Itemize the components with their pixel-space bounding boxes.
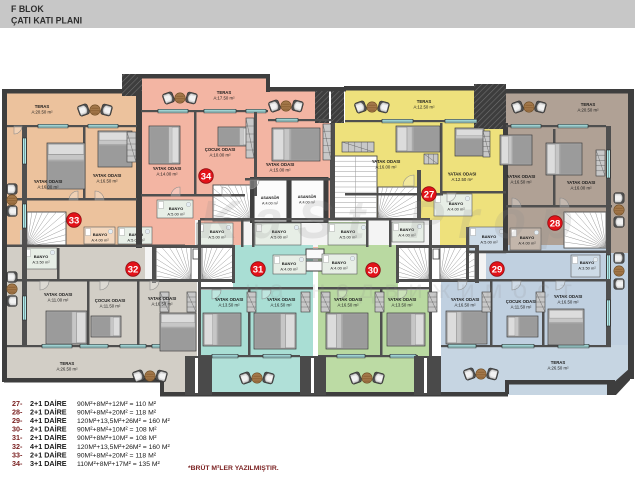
svg-text:TERAS: TERAS xyxy=(35,104,50,109)
svg-text:A:15.00 m²: A:15.00 m² xyxy=(269,167,291,172)
svg-text:A:26.50 m²: A:26.50 m² xyxy=(56,366,78,371)
svg-text:28: 28 xyxy=(550,218,561,229)
svg-text:A:14.00 m²: A:14.00 m² xyxy=(156,171,178,176)
svg-text:YATAK ODASI: YATAK ODASI xyxy=(448,172,477,177)
svg-text:TERAS: TERAS xyxy=(581,102,596,107)
svg-text:32: 32 xyxy=(128,264,139,275)
svg-text:ÇOCUK ODASI: ÇOCUK ODASI xyxy=(205,147,236,152)
svg-text:BANYO: BANYO xyxy=(34,254,48,259)
svg-text:YATAK ODASI: YATAK ODASI xyxy=(507,174,536,179)
svg-text:YATAK ODASI: YATAK ODASI xyxy=(372,159,401,164)
svg-text:ÇOCUK ODASI: ÇOCUK ODASI xyxy=(95,298,126,303)
svg-text:YATAK ODASI: YATAK ODASI xyxy=(148,296,177,301)
svg-text:90M²+8M²+20M² = 118 M²: 90M²+8M²+20M² = 118 M² xyxy=(77,410,157,417)
svg-text:TERAS: TERAS xyxy=(60,361,75,366)
svg-text:A:12.50 m²: A:12.50 m² xyxy=(451,177,473,182)
svg-text:A:16.50 m²: A:16.50 m² xyxy=(96,178,118,183)
svg-text:ÇATI KATI PLANI: ÇATI KATI PLANI xyxy=(11,16,82,26)
svg-text:YATAK ODASI: YATAK ODASI xyxy=(266,162,295,167)
svg-text:BANYO: BANYO xyxy=(580,260,594,265)
svg-text:YATAK ODASI: YATAK ODASI xyxy=(44,292,73,297)
svg-text:BANYO: BANYO xyxy=(332,260,346,265)
svg-text:A:16.00 m²: A:16.00 m² xyxy=(375,164,397,169)
svg-text:110M²+8M²+17M² = 135 M²: 110M²+8M²+17M² = 135 M² xyxy=(77,461,161,468)
svg-text:A:11.50 m²: A:11.50 m² xyxy=(511,304,532,309)
svg-text:33: 33 xyxy=(69,215,80,226)
svg-text:YATAK ODASI: YATAK ODASI xyxy=(215,297,244,302)
svg-text:*BRÜT M²LER YAZILMIŞTIR.: *BRÜT M²LER YAZILMIŞTIR. xyxy=(188,463,279,472)
svg-text:3+1 DAİRE: 3+1 DAİRE xyxy=(30,459,67,468)
svg-text:TERAS: TERAS xyxy=(551,360,566,365)
svg-text:F BLOK: F BLOK xyxy=(11,4,44,14)
svg-text:YATAK ODASI: YATAK ODASI xyxy=(153,166,182,171)
svg-text:A:12.50 m²: A:12.50 m² xyxy=(413,104,435,109)
svg-text:YATAK ODASI: YATAK ODASI xyxy=(93,173,122,178)
svg-text:YATAK ODASI: YATAK ODASI xyxy=(567,180,596,185)
svg-text:A:26.50 m²: A:26.50 m² xyxy=(547,365,569,370)
svg-text:KaSt Prop: KaSt Prop xyxy=(200,190,587,250)
svg-text:A:11.50 m²: A:11.50 m² xyxy=(100,303,121,308)
svg-text:A:5.00 m²: A:5.00 m² xyxy=(167,211,185,216)
svg-text:29: 29 xyxy=(492,264,503,275)
svg-text:TERAS: TERAS xyxy=(417,99,432,104)
svg-text:BANYO: BANYO xyxy=(282,261,296,266)
svg-text:A:4.00 m²: A:4.00 m² xyxy=(330,265,348,270)
svg-text:A:17.50 m²: A:17.50 m² xyxy=(213,95,235,100)
svg-text:A:16.50 m²: A:16.50 m² xyxy=(510,179,532,184)
svg-text:A:10.00 m²: A:10.00 m² xyxy=(209,152,231,157)
svg-text:90M²+8M²+20M² = 118 M²: 90M²+8M²+20M² = 118 M² xyxy=(77,452,157,459)
svg-text:YATAK ODASI: YATAK ODASI xyxy=(34,179,63,184)
svg-text:A:4.00 m²: A:4.00 m² xyxy=(280,266,298,271)
svg-text:A:16.00 m²: A:16.00 m² xyxy=(37,184,59,189)
svg-text:34: 34 xyxy=(201,171,212,182)
svg-text:90M²+8M²+12M² = 110 M²: 90M²+8M²+12M² = 110 M² xyxy=(77,401,157,408)
svg-text:A:11.00 m²: A:11.00 m² xyxy=(48,297,69,302)
svg-text:TERAS: TERAS xyxy=(217,90,232,95)
svg-text:30: 30 xyxy=(368,265,379,276)
svg-text:A:20.50 m²: A:20.50 m² xyxy=(577,107,599,112)
svg-text:A:16.50 m²: A:16.50 m² xyxy=(151,301,173,306)
svg-text:BANYO: BANYO xyxy=(169,206,183,211)
svg-text:A:13.50 m²: A:13.50 m² xyxy=(218,302,240,307)
svg-text:на недвижимост: на недвижимост xyxy=(245,274,582,304)
svg-text:BANYO: BANYO xyxy=(93,232,107,237)
svg-text:A:3.50 m²: A:3.50 m² xyxy=(32,259,50,264)
svg-text:27: 27 xyxy=(424,189,435,200)
svg-text:31: 31 xyxy=(253,264,264,275)
svg-text:120M²+13,5M²+26M² = 160 M²: 120M²+13,5M²+26M² = 160 M² xyxy=(77,418,170,425)
svg-text:120M²+13,5M²+26M² = 160 M²: 120M²+13,5M²+26M² = 160 M² xyxy=(77,444,170,451)
svg-text:34-: 34- xyxy=(12,459,23,468)
svg-text:90M²+8M²+10M² = 108 M²: 90M²+8M²+10M² = 108 M² xyxy=(77,435,157,442)
svg-text:90M²+8M²+10M² = 108 M²: 90M²+8M²+10M² = 108 M² xyxy=(77,427,157,434)
svg-text:A:3.50 m²: A:3.50 m² xyxy=(578,265,596,270)
svg-text:A:20.50 m²: A:20.50 m² xyxy=(31,109,53,114)
svg-text:A:4.00 m²: A:4.00 m² xyxy=(91,237,109,242)
